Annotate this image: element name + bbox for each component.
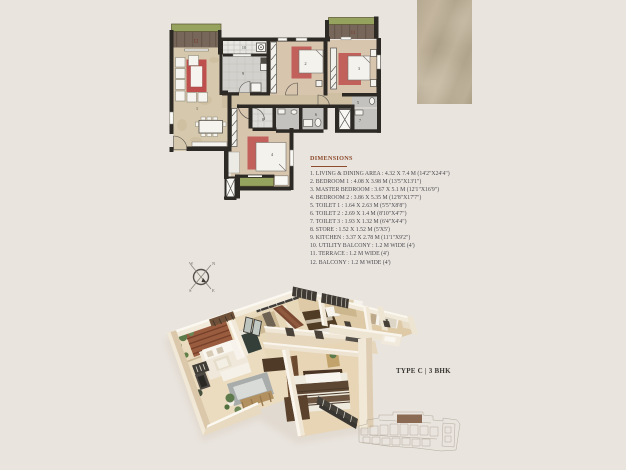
svg-text:W: W — [189, 261, 194, 266]
svg-text:1: 1 — [196, 106, 198, 111]
svg-text:2: 2 — [304, 61, 306, 66]
svg-text:12: 12 — [194, 40, 200, 45]
svg-text:10: 10 — [242, 45, 247, 50]
svg-text:11: 11 — [351, 31, 356, 36]
svg-text:N: N — [212, 261, 216, 266]
